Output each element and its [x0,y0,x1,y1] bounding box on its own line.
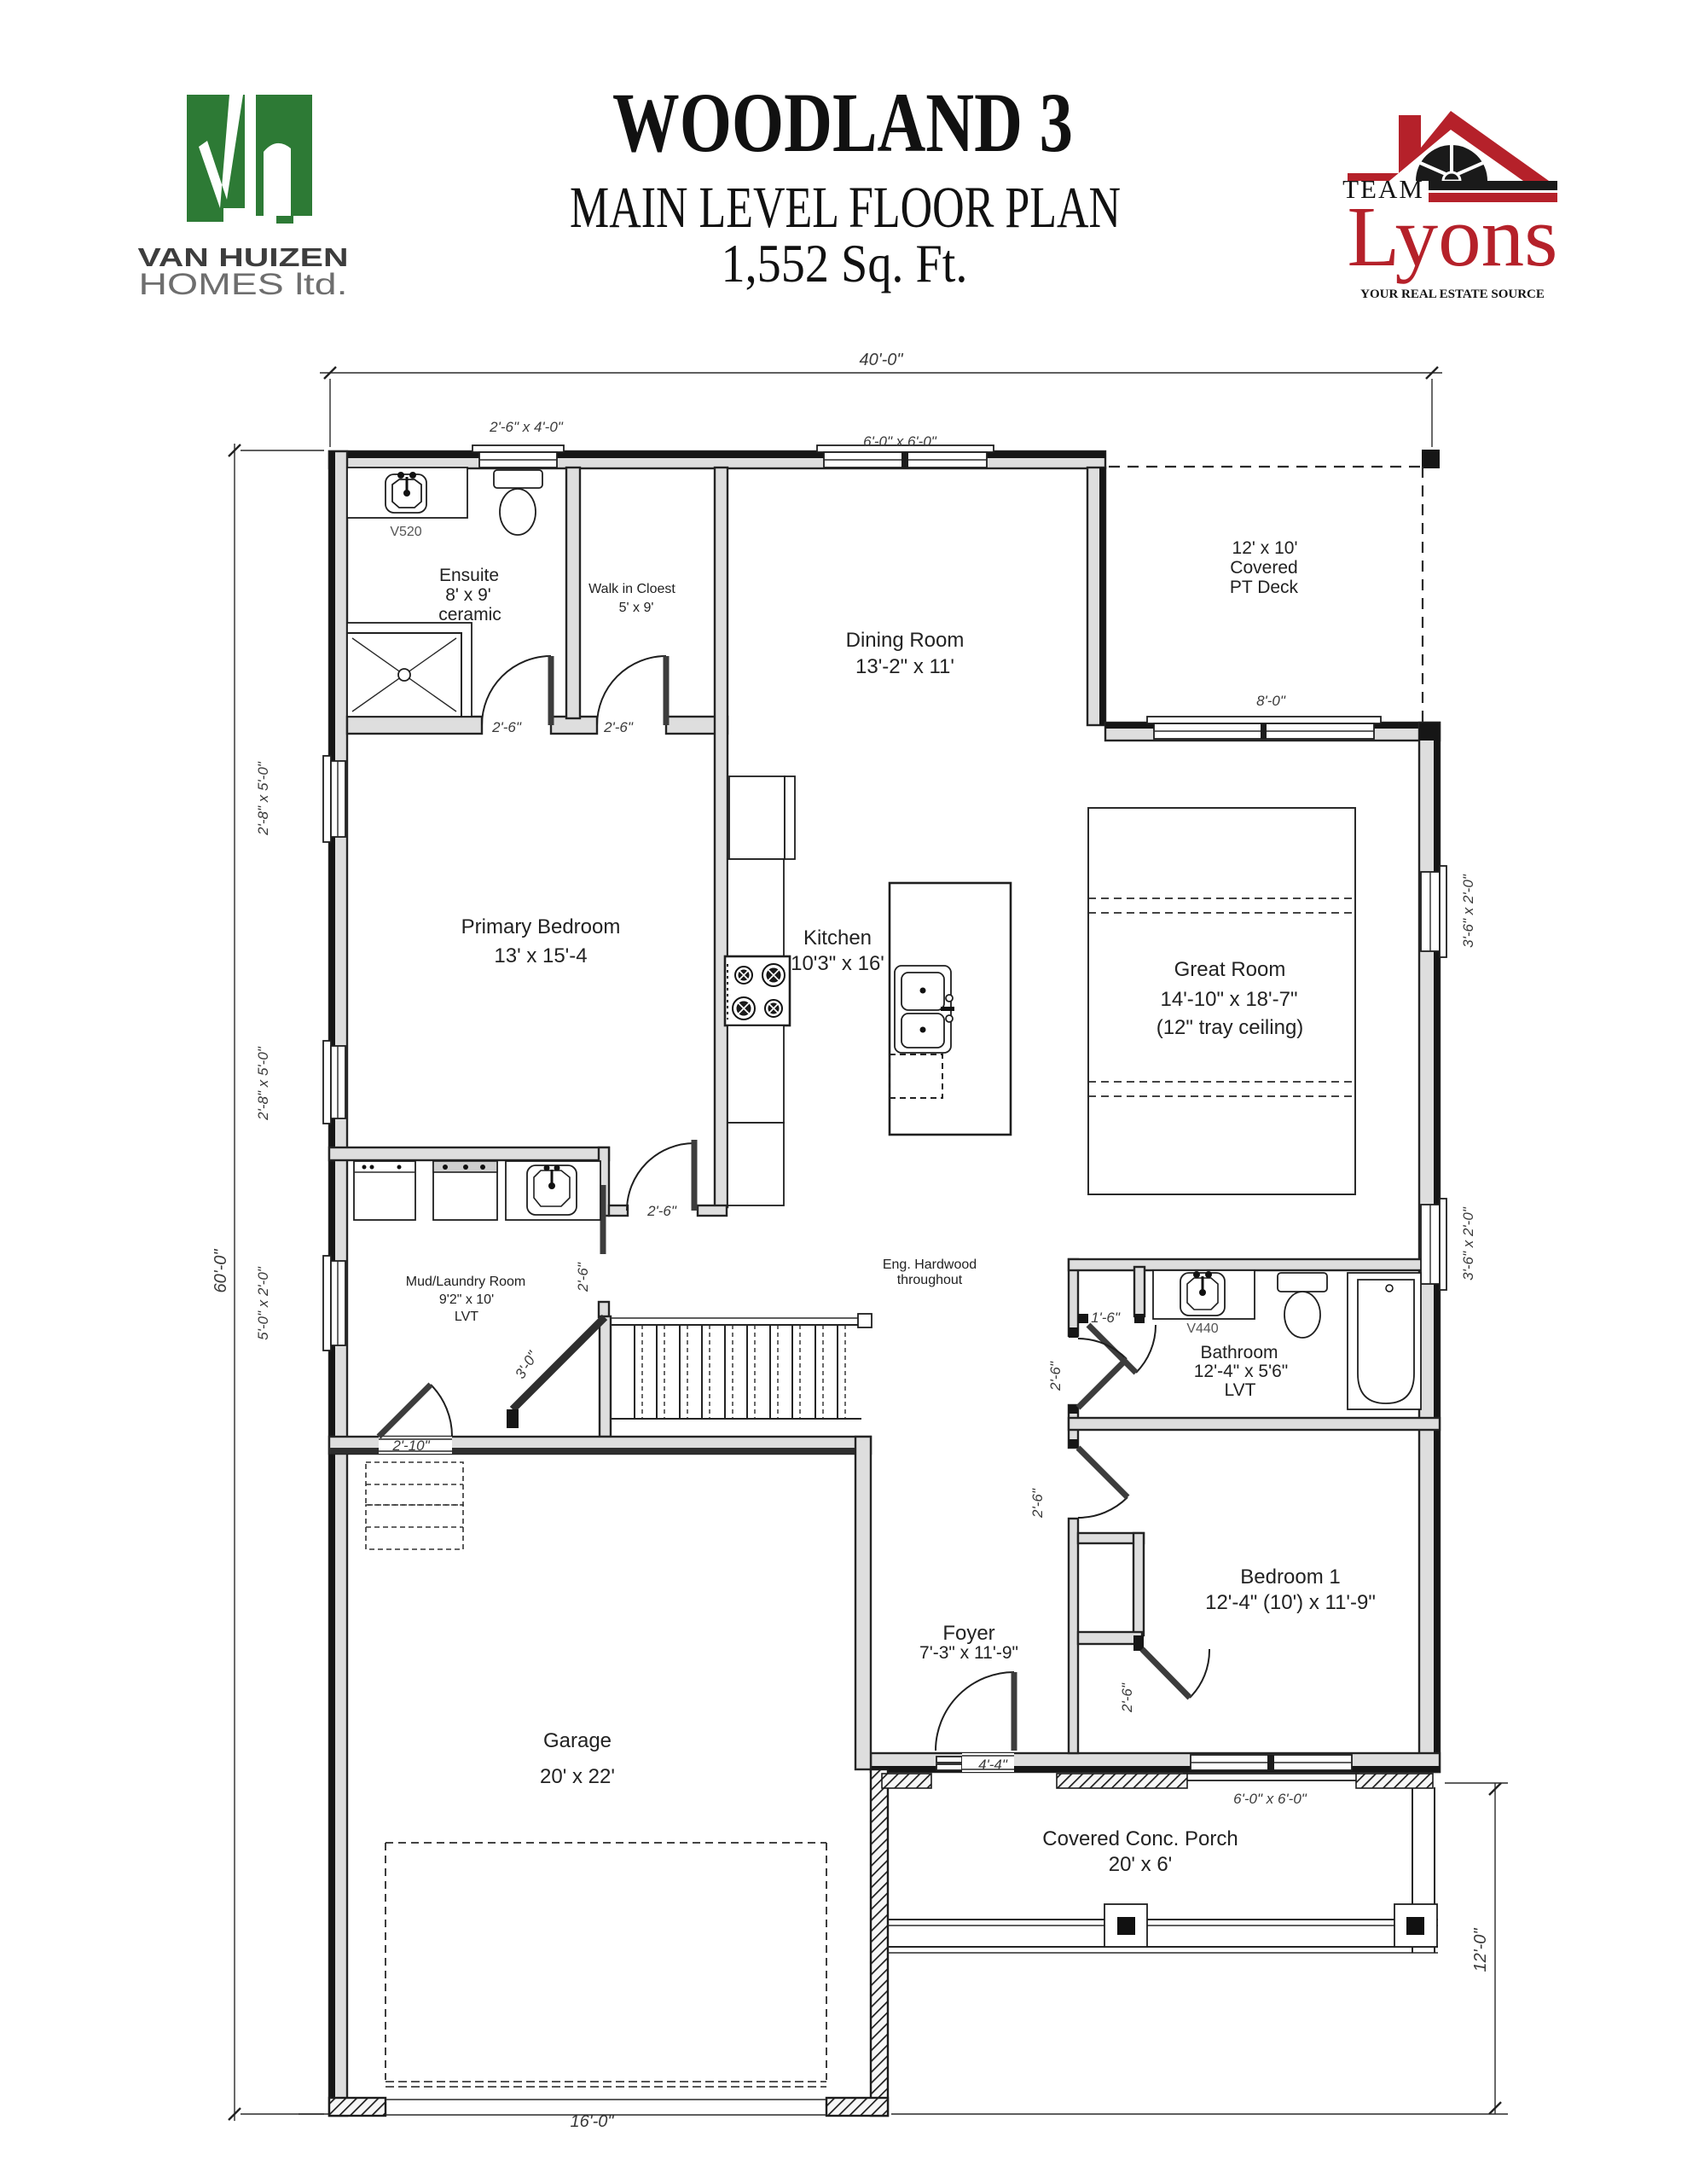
svg-text:2'-10": 2'-10" [391,1438,430,1454]
svg-text:14'-10" x 18'-7": 14'-10" x 18'-7" [1161,988,1298,1011]
svg-text:3'-6" x 2'-0": 3'-6" x 2'-0" [1460,1206,1476,1281]
svg-text:2'-6": 2'-6" [603,719,634,735]
svg-text:12'-4" x 5'6": 12'-4" x 5'6" [1194,1362,1289,1381]
svg-text:2'-6": 2'-6" [1119,1682,1135,1713]
svg-text:Kitchen: Kitchen [803,926,872,950]
svg-text:3'-0": 3'-0" [512,1348,542,1382]
svg-text:12'-4" (10') x 11'-9": 12'-4" (10') x 11'-9" [1205,1591,1376,1614]
svg-text:PT Deck: PT Deck [1230,578,1299,597]
svg-text:20' x 22': 20' x 22' [540,1765,615,1788]
svg-text:40'-0": 40'-0" [860,351,904,369]
svg-text:YOUR REAL ESTATE SOURCE: YOUR REAL ESTATE SOURCE [1360,288,1545,301]
svg-text:2'-6" x 4'-0": 2'-6" x 4'-0" [489,419,564,435]
svg-text:1,552 Sq. Ft.: 1,552 Sq. Ft. [722,234,968,293]
svg-text:Covered: Covered [1230,558,1297,578]
svg-text:Mud/Laundry Room: Mud/Laundry Room [406,1275,526,1289]
svg-text:Bathroom: Bathroom [1200,1343,1278,1362]
svg-text:Walk in Cloest: Walk in Cloest [588,582,675,596]
svg-text:12' x 10': 12' x 10' [1232,538,1298,558]
svg-text:3'-6" x 2'-0": 3'-6" x 2'-0" [1460,874,1476,948]
svg-text:Eng. Hardwood: Eng. Hardwood [883,1258,977,1272]
svg-text:2'-6": 2'-6" [1047,1361,1064,1391]
svg-text:2'-6": 2'-6" [646,1203,677,1219]
svg-text:V520: V520 [390,525,421,539]
svg-text:LVT: LVT [1225,1380,1256,1400]
svg-text:10'3" x 16': 10'3" x 16' [791,952,884,975]
svg-text:7'-3" x 11'-9": 7'-3" x 11'-9" [919,1643,1018,1663]
svg-text:throughout: throughout [897,1273,963,1287]
svg-text:20' x 6': 20' x 6' [1109,1853,1173,1876]
svg-text:Great Room: Great Room [1174,958,1286,981]
svg-text:8'-0": 8'-0" [1256,693,1286,709]
svg-text:2'-6": 2'-6" [575,1262,591,1292]
svg-text:HOMES ltd.: HOMES ltd. [139,268,348,301]
svg-text:6'-0" x 6'-0": 6'-0" x 6'-0" [863,433,937,450]
svg-text:13'-2" x 11': 13'-2" x 11' [855,655,954,678]
svg-text:Lyons: Lyons [1348,189,1558,284]
svg-text:2'-8" x 5'-0": 2'-8" x 5'-0" [255,1046,271,1121]
svg-text:Ensuite: Ensuite [439,566,499,585]
svg-text:LVT: LVT [455,1310,478,1324]
svg-text:Covered Conc. Porch: Covered Conc. Porch [1042,1827,1238,1850]
svg-text:5' x 9': 5' x 9' [619,601,654,615]
svg-text:8' x 9': 8' x 9' [445,585,491,605]
svg-text:Foyer: Foyer [942,1622,994,1645]
svg-text:2'-6": 2'-6" [491,719,522,735]
svg-text:5'-0" x 2'-0": 5'-0" x 2'-0" [255,1266,271,1340]
svg-text:12'-0": 12'-0" [1471,1928,1490,1972]
svg-text:1'-6": 1'-6" [1091,1310,1121,1326]
svg-text:2'-8" x 5'-0": 2'-8" x 5'-0" [255,761,271,836]
svg-text:2'-6": 2'-6" [1029,1488,1046,1519]
svg-text:13' x 15'-4: 13' x 15'-4 [494,944,587,967]
svg-text:Bedroom 1: Bedroom 1 [1240,1565,1340,1589]
svg-text:60'-0": 60'-0" [212,1249,230,1293]
svg-text:V440: V440 [1186,1321,1218,1336]
svg-text:(12" tray ceiling): (12" tray ceiling) [1157,1016,1304,1039]
svg-text:MAIN LEVEL FLOOR PLAN: MAIN LEVEL FLOOR PLAN [570,175,1121,240]
svg-text:4'-4": 4'-4" [978,1757,1008,1773]
svg-text:ceramic: ceramic [438,605,501,624]
svg-text:Dining Room: Dining Room [846,629,965,652]
svg-text:Primary Bedroom: Primary Bedroom [461,915,621,938]
svg-text:WOODLAND 3: WOODLAND 3 [612,75,1073,170]
svg-text:6'-0" x 6'-0": 6'-0" x 6'-0" [1233,1791,1307,1807]
svg-text:9'2" x 10': 9'2" x 10' [439,1292,494,1307]
svg-text:Garage: Garage [543,1729,612,1752]
